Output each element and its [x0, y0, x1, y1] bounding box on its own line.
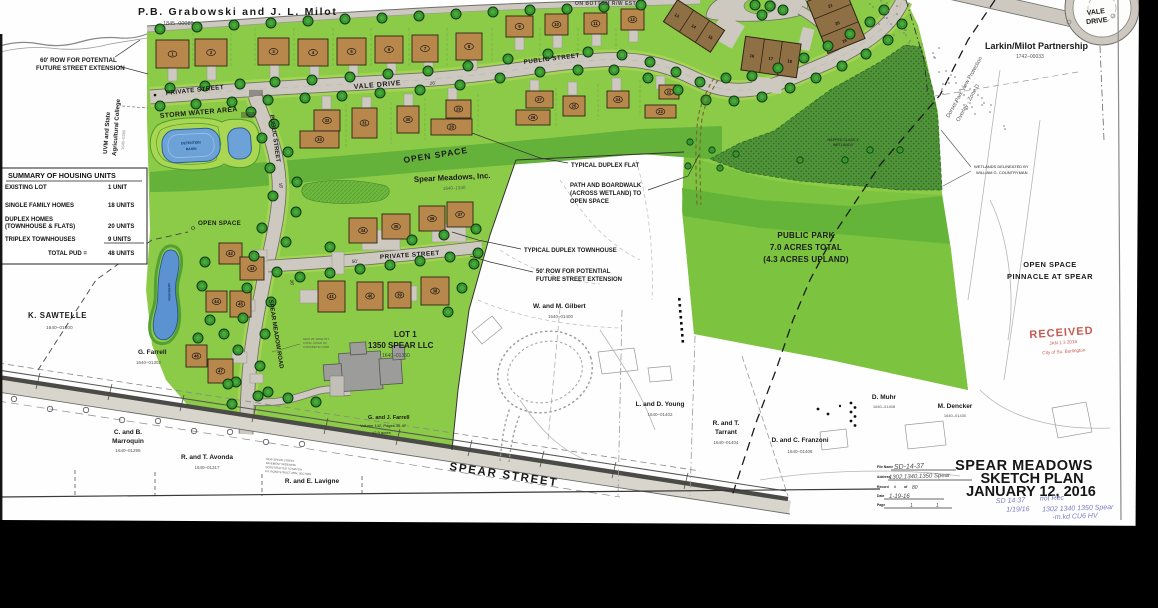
svg-text:BASIN: BASIN	[186, 147, 197, 152]
svg-text:26': 26'	[289, 279, 295, 286]
svg-text:LOT 1: LOT 1	[394, 330, 417, 339]
svg-text:JANUARY 12, 2016: JANUARY 12, 2016	[966, 484, 1096, 500]
svg-text:(TOWNHOUSE & FLATS): (TOWNHOUSE & FLATS)	[5, 224, 75, 230]
svg-text:SD 14 37: SD 14 37	[996, 497, 1027, 505]
svg-text:(ACROSS WETLAND) TO: (ACROSS WETLAND) TO	[570, 191, 642, 197]
svg-text:R. and E. Lavigne: R. and E. Lavigne	[285, 478, 340, 485]
svg-text:D. Muhr: D. Muhr	[872, 394, 897, 401]
svg-text:39: 39	[397, 293, 402, 298]
svg-text:1: 1	[936, 503, 939, 509]
svg-text:SINGLE FAMILY HOMES: SINGLE FAMILY HOMES	[5, 203, 74, 209]
svg-text:44: 44	[214, 299, 219, 304]
svg-text:37: 37	[458, 212, 463, 217]
svg-text:D. and C. Franzoni: D. and C. Franzoni	[771, 437, 828, 444]
svg-text:18': 18'	[278, 182, 284, 189]
svg-text:47: 47	[218, 369, 223, 374]
svg-text:PUBLIC PARK: PUBLIC PARK	[777, 231, 834, 240]
svg-text:1640–01350: 1640–01350	[382, 353, 410, 359]
svg-text:Record: Record	[877, 485, 889, 489]
svg-text:OPEN SPACE: OPEN SPACE	[198, 220, 241, 227]
svg-text:1640–01295: 1640–01295	[115, 448, 141, 453]
svg-text:TYPICAL DUPLEX FLAT: TYPICAL DUPLEX FLAT	[571, 163, 639, 169]
svg-text:26: 26	[531, 115, 536, 120]
svg-text:CONCRETE CURB: CONCRETE CURB	[303, 345, 329, 349]
svg-text:1640–01406: 1640–01406	[787, 449, 813, 454]
svg-text:C. and B.: C. and B.	[114, 429, 142, 436]
svg-text:12: 12	[630, 17, 635, 22]
svg-text:TOTAL PUD =: TOTAL PUD =	[48, 251, 87, 257]
svg-text:EXISTING LOT: EXISTING LOT	[5, 185, 47, 191]
svg-text:K. SAWTELLE: K. SAWTELLE	[28, 311, 87, 320]
svg-text:SD-14-37: SD-14-37	[894, 463, 925, 471]
svg-text:PINNACLE AT SPEAR: PINNACLE AT SPEAR	[1007, 272, 1093, 281]
svg-text:OPEN SPACE: OPEN SPACE	[570, 199, 609, 205]
svg-text:45: 45	[238, 302, 243, 307]
svg-text:20 UNITS: 20 UNITS	[108, 224, 134, 230]
svg-text:1640–01302: 1640–01302	[136, 360, 162, 365]
svg-text:Marroquin: Marroquin	[112, 438, 144, 445]
svg-text:24: 24	[616, 97, 621, 102]
svg-text:35: 35	[394, 224, 399, 229]
svg-text:FUTURE STREET EXTENSION: FUTURE STREET EXTENSION	[536, 277, 622, 283]
svg-text:50': 50'	[352, 259, 358, 264]
svg-text:SUMMARY OF HOUSING UNITS: SUMMARY OF HOUSING UNITS	[8, 171, 116, 180]
svg-text:OPEN SPACE: OPEN SPACE	[1023, 260, 1077, 269]
svg-text:G. Farrell: G. Farrell	[138, 349, 167, 356]
svg-text:DETENTION: DETENTION	[167, 283, 171, 300]
svg-text:50' ROW FOR POTENTIAL: 50' ROW FOR POTENTIAL	[536, 269, 611, 275]
svg-text:1/19/16: 1/19/16	[1006, 506, 1030, 514]
svg-text:DUPLEX HOMES: DUPLEX HOMES	[5, 217, 53, 223]
svg-text:1640–01300: 1640–01300	[46, 325, 73, 331]
svg-text:1-19-16: 1-19-16	[889, 494, 910, 500]
svg-text:33: 33	[317, 137, 322, 142]
svg-text:Tarrant: Tarrant	[715, 429, 738, 436]
svg-text:60' ROW FOR POTENTIAL: 60' ROW FOR POTENTIAL	[40, 57, 117, 64]
svg-text:46: 46	[194, 354, 199, 359]
svg-text:Volume 142, Pages 45-47: Volume 142, Pages 45-47	[360, 423, 407, 428]
svg-text:(4.3 ACRES UPLAND): (4.3 ACRES UPLAND)	[763, 255, 849, 264]
svg-text:7.0 ACRES TOTAL: 7.0 ACRES TOTAL	[770, 243, 842, 252]
svg-text:1 UNIT: 1 UNIT	[108, 185, 127, 191]
svg-text:1350 SPEAR LLC: 1350 SPEAR LLC	[368, 341, 434, 350]
svg-text:11: 11	[593, 21, 598, 26]
svg-text:10: 10	[554, 22, 559, 27]
svg-text:36: 36	[430, 216, 435, 221]
svg-text:34: 34	[361, 228, 366, 233]
svg-text:80: 80	[912, 485, 918, 491]
svg-text:M. Dencker: M. Dencker	[938, 403, 973, 410]
svg-text:27: 27	[537, 97, 542, 102]
svg-text:1640–01402: 1640–01402	[647, 412, 673, 417]
svg-text:1845–00089: 1845–00089	[163, 21, 194, 27]
svg-text:1640–01408: 1640–01408	[873, 404, 896, 409]
svg-text:File Name: File Name	[877, 465, 893, 469]
svg-text:1640–01404: 1640–01404	[713, 440, 739, 445]
svg-text:9 UNITS: 9 UNITS	[108, 237, 131, 243]
svg-text:Page: Page	[877, 503, 885, 507]
svg-text:40: 40	[368, 294, 373, 299]
svg-text:TYPICAL DUPLEX TOWNHOUSE: TYPICAL DUPLEX TOWNHOUSE	[524, 248, 617, 254]
svg-text:R. and T.: R. and T.	[713, 420, 740, 427]
svg-text:1640–01317: 1640–01317	[194, 465, 220, 470]
svg-text:18 UNITS: 18 UNITS	[108, 203, 134, 209]
svg-text:1640–01400: 1640–01400	[548, 314, 574, 319]
svg-text:29: 29	[456, 107, 461, 112]
svg-text:PATH AND BOARDWALK: PATH AND BOARDWALK	[570, 183, 642, 189]
svg-text:43: 43	[250, 266, 255, 271]
svg-text:#: #	[894, 485, 896, 489]
svg-text:1640–01430: 1640–01430	[944, 413, 967, 418]
svg-text:32: 32	[325, 118, 330, 123]
svg-text:25: 25	[572, 104, 577, 109]
svg-text:WILLIAM G. COUNTRYMAN: WILLIAM G. COUNTRYMAN	[976, 170, 1028, 175]
svg-text:WETLANDS DELINEATED BY: WETLANDS DELINEATED BY	[974, 164, 1029, 169]
svg-text:23: 23	[658, 109, 663, 114]
svg-text:1742–00033: 1742–00033	[1016, 54, 1044, 60]
svg-text:MAPPED CLASS X: MAPPED CLASS X	[827, 138, 859, 142]
svg-text:R. and T. Avonda: R. and T. Avonda	[181, 454, 233, 461]
svg-text:Larkin/Milot Partnership: Larkin/Milot Partnership	[985, 41, 1089, 51]
svg-text:22: 22	[667, 90, 672, 95]
svg-text:not Rec: not Rec	[1040, 495, 1065, 503]
svg-text:28: 28	[449, 125, 454, 130]
svg-text:41: 41	[329, 294, 334, 299]
svg-text:30: 30	[406, 117, 411, 122]
svg-text:31: 31	[362, 121, 367, 126]
svg-text:Date: Date	[877, 494, 884, 498]
svg-text:G. and J. Farrell: G. and J. Farrell	[368, 415, 410, 421]
svg-text:26': 26'	[429, 80, 436, 86]
svg-text:1: 1	[910, 503, 913, 509]
svg-text:TRIPLEX TOWNHOUSES: TRIPLEX TOWNHOUSES	[5, 237, 76, 243]
svg-text:ON BOTTOM R/W EST: ON BOTTOM R/W EST	[575, 1, 636, 7]
svg-text:WETLANDS: WETLANDS	[833, 143, 854, 147]
svg-text:±2.9 acres: ±2.9 acres	[372, 430, 391, 435]
svg-text:42: 42	[228, 251, 233, 256]
svg-text:FUTURE STREET EXTENSION: FUTURE STREET EXTENSION	[36, 65, 125, 72]
svg-text:48 UNITS: 48 UNITS	[108, 251, 134, 257]
svg-text:P.B. Grabowski and J. L. Milot: P.B. Grabowski and J. L. Milot	[138, 6, 338, 18]
svg-text:L. and D. Young: L. and D. Young	[636, 401, 685, 408]
svg-text:W. and M. Gilbert: W. and M. Gilbert	[533, 303, 587, 310]
svg-text:38: 38	[433, 289, 438, 294]
